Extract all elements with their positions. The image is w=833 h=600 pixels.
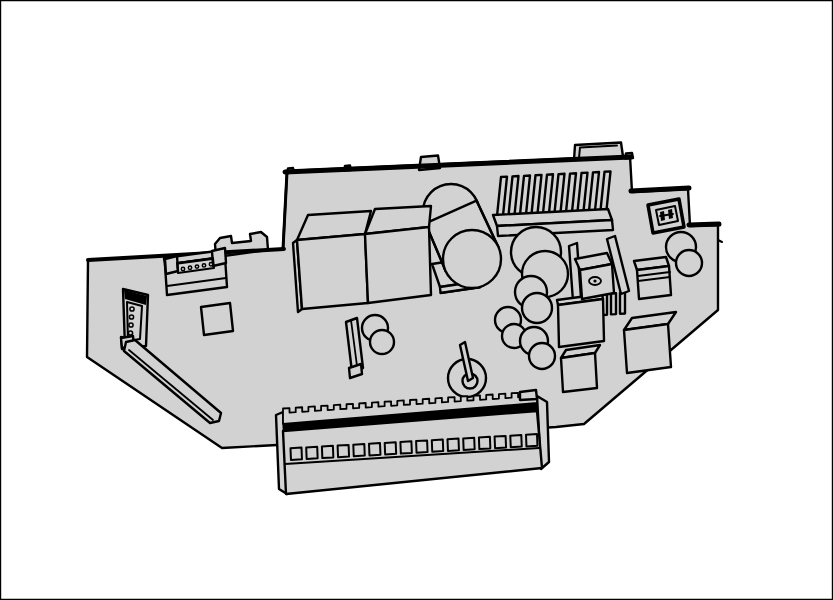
cluster-capacitor xyxy=(522,293,552,323)
terminal-hole xyxy=(291,448,302,460)
terminal-hole xyxy=(322,446,333,458)
jumper-connector xyxy=(648,199,684,233)
side-connector-pin xyxy=(128,331,132,335)
terminal-hole xyxy=(448,439,459,451)
header-pin xyxy=(181,267,184,270)
board-step-edge-1 xyxy=(631,188,689,191)
cube-component-small xyxy=(561,345,600,392)
cube-component-large xyxy=(624,312,676,373)
terminal-hole xyxy=(432,440,443,452)
lower-heatsink-fin xyxy=(611,293,616,314)
small-cap-face xyxy=(676,250,702,276)
lower-heatsink-fin xyxy=(620,293,625,314)
terminal-hole xyxy=(526,434,537,446)
board-step-edge-2 xyxy=(689,224,719,225)
terminal-hole xyxy=(479,437,490,449)
screw-center xyxy=(593,279,596,282)
terminal-hole xyxy=(495,436,506,448)
jumper-outer xyxy=(648,199,684,233)
header-pin xyxy=(188,266,191,269)
bracket-foot xyxy=(349,364,362,378)
terminal-hole xyxy=(400,441,411,453)
circuit-board-illustration xyxy=(0,0,833,600)
side-connector-pin xyxy=(129,315,133,319)
cluster-capacitor xyxy=(529,343,555,369)
relay-left xyxy=(293,211,371,312)
header-pin xyxy=(209,263,212,266)
bracket-cap-face xyxy=(370,330,394,354)
capacitor-face xyxy=(443,230,501,288)
terminal-hole xyxy=(353,444,364,456)
cube-large-front xyxy=(624,324,671,373)
terminal-hole xyxy=(338,445,349,457)
terminal-hole xyxy=(463,438,474,450)
film-capacitor-box xyxy=(634,257,671,299)
side-connector-pin xyxy=(129,323,133,327)
terminal-hole xyxy=(510,435,521,447)
side-connector-pin xyxy=(130,307,134,311)
film-cap-front xyxy=(637,266,671,299)
terminal-hole xyxy=(416,440,427,452)
terminal-end-step xyxy=(520,390,537,400)
cube-small-front xyxy=(561,353,597,392)
terminal-hole xyxy=(385,442,396,454)
relay-right xyxy=(365,206,431,303)
relay-right-front xyxy=(365,227,431,303)
illustration-canvas xyxy=(0,0,833,600)
header-pin xyxy=(195,265,198,268)
header-pin xyxy=(202,264,205,267)
lower-heatsink-front xyxy=(558,299,604,347)
header-end-wall xyxy=(165,256,178,274)
ic-chip xyxy=(201,303,233,335)
terminal-hole xyxy=(306,447,317,459)
terminal-hole xyxy=(369,443,380,455)
relay-left-front xyxy=(297,234,368,309)
